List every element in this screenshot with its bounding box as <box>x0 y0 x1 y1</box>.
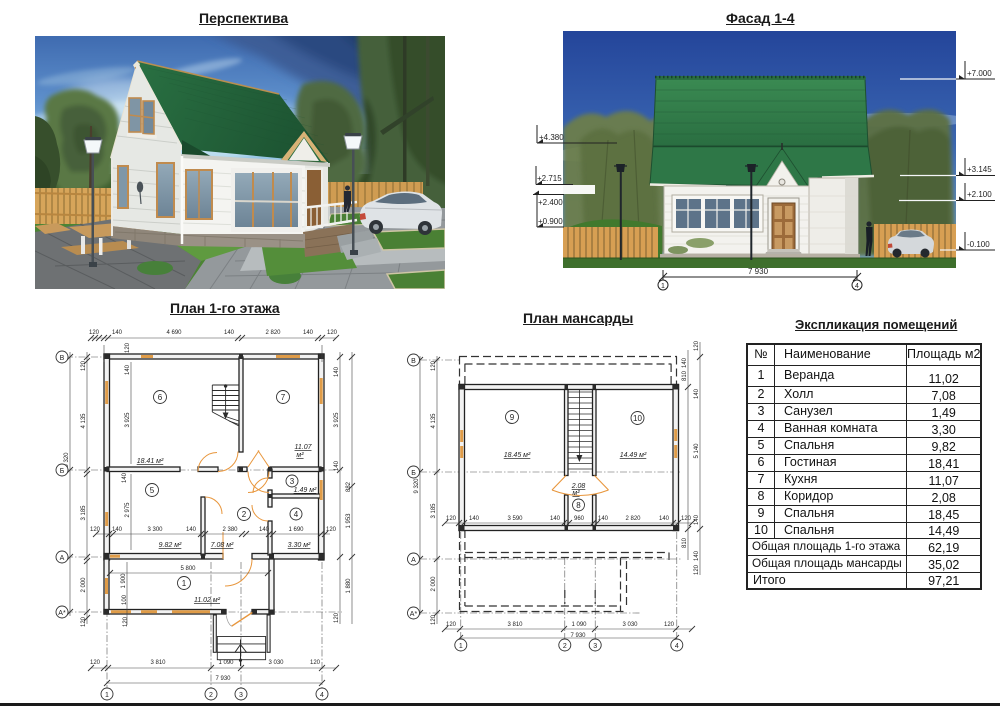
svg-text:14.49 м²: 14.49 м² <box>620 452 647 459</box>
svg-text:1.49 м²: 1.49 м² <box>294 487 317 494</box>
svg-text:11.07: 11.07 <box>295 444 313 451</box>
svg-text:120: 120 <box>431 614 437 625</box>
svg-text:А: А <box>411 557 416 564</box>
svg-text:3 925: 3 925 <box>334 412 340 428</box>
svg-text:2: 2 <box>563 643 567 650</box>
svg-text:4 690: 4 690 <box>166 330 182 336</box>
svg-text:120: 120 <box>90 527 101 533</box>
svg-text:140: 140 <box>186 527 197 533</box>
svg-text:5 800: 5 800 <box>180 566 196 572</box>
svg-text:1 880: 1 880 <box>346 578 352 594</box>
svg-text:м²: м² <box>572 490 580 497</box>
svg-text:3: 3 <box>239 692 243 699</box>
svg-text:120: 120 <box>334 612 340 623</box>
svg-text:140: 140 <box>469 516 480 522</box>
svg-text:9 320: 9 320 <box>414 478 420 494</box>
svg-text:8: 8 <box>576 501 581 510</box>
svg-text:140: 140 <box>112 527 123 533</box>
svg-text:1 690: 1 690 <box>288 527 304 533</box>
svg-text:140: 140 <box>694 514 700 525</box>
svg-text:120: 120 <box>446 622 457 628</box>
svg-text:4: 4 <box>675 643 679 650</box>
svg-text:18.45 м²: 18.45 м² <box>504 452 531 459</box>
svg-text:Б: Б <box>60 468 65 475</box>
svg-text:3 030: 3 030 <box>622 622 638 628</box>
svg-text:Б: Б <box>411 470 416 477</box>
svg-text:140: 140 <box>659 516 670 522</box>
svg-text:140: 140 <box>682 357 688 368</box>
svg-text:2 820: 2 820 <box>265 330 281 336</box>
svg-text:5: 5 <box>150 486 155 495</box>
svg-text:1: 1 <box>459 643 463 650</box>
svg-text:120: 120 <box>125 342 131 353</box>
svg-text:120: 120 <box>89 330 100 336</box>
svg-text:-0.100: -0.100 <box>967 240 990 249</box>
svg-text:1: 1 <box>105 692 109 699</box>
svg-text:3 030: 3 030 <box>268 660 284 666</box>
svg-text:140: 140 <box>550 516 561 522</box>
svg-text:120: 120 <box>81 360 87 371</box>
svg-text:140: 140 <box>694 388 700 399</box>
svg-text:м²: м² <box>296 452 304 459</box>
svg-text:2 380: 2 380 <box>222 527 238 533</box>
svg-text:+3.145: +3.145 <box>967 165 992 174</box>
svg-text:120: 120 <box>123 616 129 627</box>
svg-text:140: 140 <box>694 550 700 561</box>
svg-text:3 300: 3 300 <box>147 527 163 533</box>
svg-text:120: 120 <box>681 516 692 522</box>
svg-text:2 975: 2 975 <box>125 502 131 518</box>
svg-text:120: 120 <box>90 660 101 666</box>
svg-text:120: 120 <box>694 340 700 351</box>
svg-text:2 820: 2 820 <box>625 516 641 522</box>
svg-text:3 925: 3 925 <box>125 412 131 428</box>
svg-text:1 900: 1 900 <box>121 573 127 589</box>
svg-text:120: 120 <box>327 330 338 336</box>
svg-text:140: 140 <box>125 364 131 375</box>
svg-text:120: 120 <box>326 527 337 533</box>
svg-text:120: 120 <box>431 360 437 371</box>
svg-text:11.02 м²: 11.02 м² <box>194 597 221 604</box>
svg-text:А*: А* <box>58 610 66 617</box>
svg-text:7 930: 7 930 <box>748 267 769 276</box>
svg-text:882: 882 <box>346 481 352 492</box>
svg-text:140: 140 <box>259 527 270 533</box>
svg-text:В: В <box>411 358 416 365</box>
svg-text:7 930: 7 930 <box>570 633 586 639</box>
svg-text:3 810: 3 810 <box>507 622 523 628</box>
svg-text:2 000: 2 000 <box>431 576 437 592</box>
svg-text:140: 140 <box>224 330 235 336</box>
svg-text:7.08 м²: 7.08 м² <box>211 542 234 549</box>
svg-text:3: 3 <box>290 477 295 486</box>
svg-text:10: 10 <box>633 414 642 423</box>
svg-text:2: 2 <box>209 692 213 699</box>
svg-text:9.82 м²: 9.82 м² <box>159 542 182 549</box>
svg-text:3: 3 <box>593 643 597 650</box>
svg-text:5 140: 5 140 <box>694 443 700 459</box>
svg-text:120: 120 <box>310 660 321 666</box>
svg-text:А*: А* <box>410 611 418 618</box>
svg-text:810: 810 <box>682 537 688 548</box>
svg-text:100: 100 <box>122 594 128 605</box>
svg-text:1: 1 <box>182 579 187 588</box>
svg-text:3 590: 3 590 <box>507 516 523 522</box>
svg-text:120: 120 <box>694 564 700 575</box>
svg-text:9: 9 <box>510 413 515 422</box>
svg-text:4: 4 <box>855 283 859 290</box>
svg-text:2 000: 2 000 <box>81 577 87 593</box>
svg-text:3.30 м²: 3.30 м² <box>288 542 311 549</box>
svg-text:120: 120 <box>664 622 675 628</box>
svg-text:+4.380: +4.380 <box>539 133 564 142</box>
svg-text:810: 810 <box>682 370 688 381</box>
svg-text:А: А <box>60 555 65 562</box>
svg-text:140: 140 <box>334 366 340 377</box>
svg-text:7 930: 7 930 <box>215 676 231 682</box>
svg-text:+2.400: +2.400 <box>538 198 563 207</box>
svg-text:В: В <box>60 355 65 362</box>
svg-text:+2.715: +2.715 <box>537 174 562 183</box>
svg-text:2: 2 <box>242 510 247 519</box>
svg-text:140: 140 <box>122 472 128 483</box>
svg-text:1 953: 1 953 <box>346 513 352 529</box>
svg-text:4 135: 4 135 <box>81 413 87 429</box>
svg-text:140: 140 <box>598 516 609 522</box>
svg-text:3 185: 3 185 <box>81 505 87 521</box>
svg-text:4: 4 <box>320 692 324 699</box>
svg-text:4 135: 4 135 <box>431 413 437 429</box>
svg-text:+2.100: +2.100 <box>967 190 992 199</box>
svg-text:6: 6 <box>158 393 163 402</box>
svg-text:140: 140 <box>303 330 314 336</box>
svg-text:7: 7 <box>281 393 286 402</box>
svg-text:+7.000: +7.000 <box>967 69 992 78</box>
svg-text:3 810: 3 810 <box>150 660 166 666</box>
svg-text:+0.900: +0.900 <box>538 217 563 226</box>
svg-text:3 185: 3 185 <box>431 503 437 519</box>
svg-text:1: 1 <box>661 283 665 290</box>
svg-text:4: 4 <box>294 510 299 519</box>
svg-text:18.41 м²: 18.41 м² <box>137 458 164 465</box>
svg-text:1 090: 1 090 <box>571 622 587 628</box>
svg-text:120: 120 <box>446 516 457 522</box>
svg-text:140: 140 <box>334 460 340 471</box>
svg-text:140: 140 <box>112 330 123 336</box>
svg-text:120: 120 <box>81 616 87 627</box>
svg-text:960: 960 <box>574 516 585 522</box>
svg-text:1 090: 1 090 <box>218 660 234 666</box>
svg-text:2.08: 2.08 <box>571 483 586 490</box>
